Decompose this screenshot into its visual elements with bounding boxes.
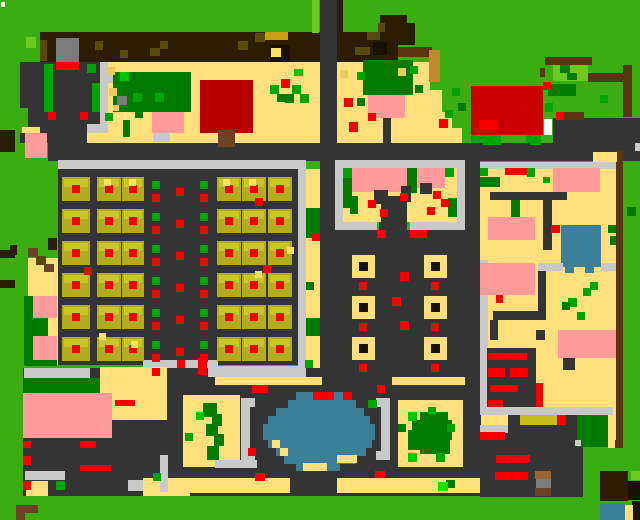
map-dot: [115, 400, 135, 406]
hedge-strip-2: [306, 318, 320, 336]
lamp-drip: [431, 323, 439, 331]
map-dot: [377, 230, 386, 238]
map-dot: [277, 94, 285, 102]
map-dot: [303, 463, 327, 471]
garden1-tree-arm-3: [420, 183, 432, 194]
map-dot: [627, 207, 636, 216]
lamp-core: [359, 344, 368, 353]
pink-hut-plaza: [25, 133, 47, 158]
corridor-dot: [200, 341, 208, 349]
lamp-core: [431, 262, 440, 271]
market-stall-dot: [72, 217, 80, 225]
market-stall-dot: [72, 345, 80, 353]
village-olive-bar: [520, 415, 557, 425]
brown-block-west: [0, 130, 15, 152]
market2-red-1: [488, 353, 527, 360]
map-dot: [551, 225, 560, 233]
market-stall-dot: [225, 185, 233, 193]
map-dot: [337, 455, 357, 463]
map-dot: [107, 67, 115, 75]
market-stall-dot: [105, 217, 113, 225]
market-stall-dot: [250, 281, 258, 289]
village-path-3: [490, 320, 498, 340]
fence-bar-1: [545, 57, 592, 65]
map-dot: [44, 64, 53, 73]
fence-dash: [564, 112, 584, 120]
garden1-wall-right: [457, 160, 465, 230]
map-dot: [400, 272, 409, 281]
map-dot: [415, 85, 423, 93]
village-dot-g3: [480, 168, 488, 176]
map-dot: [271, 48, 281, 57]
map-dot: [377, 385, 385, 393]
fence-vertical-east: [616, 150, 623, 447]
market-stall-dot: [276, 313, 284, 321]
sand-south-3: [170, 478, 290, 493]
market-stall-dot: [250, 345, 258, 353]
hedge-bar-se: [588, 440, 606, 446]
map-dot: [23, 441, 31, 448]
map-dot: [305, 360, 313, 368]
map-dot: [95, 41, 103, 50]
sand-strip-east: [306, 169, 320, 375]
clay-block: [429, 50, 440, 82]
walk-gray-b3: [160, 455, 168, 492]
map-dot: [357, 98, 365, 106]
map-dot: [428, 407, 436, 415]
corridor-dot: [152, 309, 160, 317]
lamp-core: [359, 262, 368, 271]
stall-chip: [131, 341, 138, 348]
pink-hut-left-1: [33, 296, 57, 320]
map-dot: [44, 73, 53, 112]
top-strip: [40, 32, 398, 62]
map-dot: [300, 94, 309, 103]
market-stall-dot: [225, 249, 233, 257]
pond-wall-nub-1: [241, 398, 255, 407]
map-dot: [496, 295, 503, 303]
map-dot: [562, 302, 570, 310]
brown-house-pool: [600, 503, 625, 520]
strip-fence-bar: [398, 47, 432, 57]
village-path-4: [536, 330, 545, 340]
hedge-left-bottom: [25, 360, 57, 366]
market-stall-dot: [129, 249, 137, 257]
map-dot: [0, 280, 15, 288]
market-stall-dot: [129, 217, 137, 225]
pixel-village-map[interactable]: [0, 0, 640, 520]
pond-wall-nub-4: [376, 451, 390, 460]
corridor-dot: [200, 290, 208, 298]
corridor-dot: [152, 290, 160, 298]
stall-chip: [249, 179, 256, 186]
lamp-core: [431, 303, 440, 312]
map-dot: [368, 113, 376, 121]
map-dot: [398, 424, 406, 432]
map-dot: [608, 225, 616, 233]
pond-wall-nub-3: [376, 398, 390, 407]
map-dot: [445, 110, 453, 118]
map-dot: [436, 453, 445, 462]
corridor-dot: [200, 213, 208, 221]
sand-bar-2: [392, 377, 465, 385]
walk-gray-pond-s: [215, 460, 257, 468]
brown-house-sand: [625, 505, 633, 520]
map-dot: [150, 48, 160, 56]
map-dot: [23, 481, 31, 490]
walk-dot-ne: [635, 143, 640, 151]
village-path-1: [538, 271, 546, 313]
map-dot: [263, 265, 271, 273]
pond-row-6: [268, 440, 372, 448]
map-dot: [375, 471, 385, 478]
map-dot: [312, 233, 320, 241]
map-dot: [255, 473, 265, 481]
lamp-core: [431, 344, 440, 353]
map-dot: [543, 82, 551, 90]
village-red-5: [495, 472, 528, 480]
map-dot: [92, 83, 100, 112]
map-dot: [590, 282, 598, 290]
garden1-hedge-right: [448, 198, 457, 217]
map-dot: [285, 94, 294, 103]
map-dot: [80, 441, 96, 448]
map-dot: [84, 267, 92, 275]
map-dot: [556, 112, 564, 120]
corridor-dot: [152, 181, 160, 189]
stall-chip: [223, 179, 230, 186]
map-dot: [133, 93, 142, 102]
sand-bar-1: [215, 377, 322, 385]
walk-gray-b2: [128, 480, 143, 491]
map-dot: [452, 88, 460, 96]
map-dot: [87, 64, 96, 73]
map-dot: [400, 193, 408, 201]
map-dot: [48, 238, 57, 250]
village-pink-2: [488, 217, 535, 240]
road-vertical-north: [320, 0, 337, 143]
map-dot: [177, 360, 185, 368]
market-border-east: [298, 169, 306, 377]
corridor-dot: [152, 213, 160, 221]
path-gray-corner: [87, 124, 108, 133]
village-red-post: [536, 383, 543, 407]
spanel-curve-5: [207, 446, 219, 460]
market-stall-dot: [225, 281, 233, 289]
map-dot: [357, 72, 365, 80]
village-red-4: [496, 455, 530, 463]
market-stall-dot: [276, 217, 284, 225]
market-stall-dot: [105, 345, 113, 353]
brown-house-dark-1: [628, 481, 640, 500]
map-dot: [238, 41, 248, 50]
map-dot: [398, 68, 406, 76]
sand-south-5: [450, 440, 463, 463]
pond-row-3: [276, 408, 364, 416]
garden1-wall-bottom-l: [335, 222, 377, 230]
map-dot: [196, 412, 204, 420]
stack-brown-2: [535, 488, 551, 496]
corridor-dot: [152, 194, 160, 202]
map-dot: [155, 93, 164, 102]
map-dot: [56, 481, 65, 490]
map-dot: [410, 66, 418, 74]
corridor-dot: [200, 309, 208, 317]
map-dot: [408, 412, 417, 421]
lamp-core: [359, 303, 368, 312]
garden1-hedge-left-top: [343, 168, 352, 178]
brown-mark-sw-1: [16, 505, 38, 513]
red-door-2: [479, 120, 497, 130]
market-stall-dot: [72, 185, 80, 193]
map-dot: [152, 368, 160, 376]
map-dot: [400, 321, 409, 330]
tpanel-tree-3: [420, 440, 452, 454]
map-dot: [355, 47, 370, 55]
village-sand-1: [481, 415, 508, 425]
corridor-dot: [152, 354, 160, 362]
map-dot: [367, 32, 380, 40]
garden1-hedge-left-2: [350, 196, 358, 214]
village-hedge-1: [480, 177, 500, 187]
corridor-dot: [152, 245, 160, 253]
village-path-2: [493, 311, 546, 320]
sand-south-4: [337, 478, 480, 493]
stall-chip: [104, 179, 111, 186]
map-dot: [255, 198, 263, 206]
market2-red-2: [488, 368, 505, 377]
mansion-pink: [23, 393, 112, 438]
meadow-clump: [548, 84, 576, 96]
map-dot: [0, 250, 15, 258]
stack-gray: [536, 479, 551, 488]
village-red-2: [558, 415, 566, 425]
map-dot: [313, 392, 334, 400]
lamp-drip: [359, 282, 367, 290]
pond-row-5: [263, 424, 375, 440]
map-dot: [113, 105, 119, 111]
map-dot: [433, 191, 441, 199]
fence-vertical-north: [623, 65, 632, 117]
map-dot: [567, 73, 577, 80]
corridor-dot: [176, 284, 184, 292]
map-dot: [80, 465, 111, 471]
map-dot: [160, 41, 168, 49]
sand-under-path: [87, 133, 108, 143]
market-stall-dot: [250, 217, 258, 225]
corridor-dot: [200, 245, 208, 253]
garden1-wall-left: [335, 160, 343, 230]
stack-brown-1: [535, 471, 551, 479]
map-dot: [252, 385, 268, 393]
map-dot: [290, 40, 315, 62]
top-tree-branch: [407, 23, 415, 45]
map-dot: [380, 209, 388, 217]
village-wall-bottom: [480, 407, 613, 415]
map-dot: [135, 110, 143, 118]
door-brown: [218, 130, 235, 147]
brown-house-dark-2: [632, 501, 640, 520]
map-dot: [368, 200, 376, 208]
map-dot: [280, 448, 288, 456]
map-dot: [349, 122, 358, 132]
market-stall-dot: [250, 313, 258, 321]
map-dot: [1, 2, 5, 7]
map-dot: [610, 236, 616, 245]
corridor-dot: [176, 348, 184, 356]
map-dot: [281, 79, 290, 88]
plaza-red-mat: [56, 62, 79, 70]
market2-red-4: [490, 385, 518, 392]
map-dot: [631, 471, 640, 480]
village-path-5: [563, 358, 575, 370]
map-dot: [120, 72, 129, 81]
map-dot: [120, 50, 128, 58]
market-stall-dot: [250, 185, 258, 193]
map-dot: [340, 70, 348, 78]
garden1-wall-top: [335, 160, 465, 168]
corridor-dot: [200, 277, 208, 285]
tree-grove-2: [363, 60, 413, 95]
village-hedge-2: [511, 200, 520, 217]
pond-row-2: [288, 400, 356, 408]
corridor-dot: [152, 341, 160, 349]
village-pool-foot-2: [585, 267, 594, 273]
map-dot: [438, 482, 448, 491]
map-dot: [373, 42, 387, 55]
market-stall-dot: [72, 281, 80, 289]
village-path-t1: [490, 192, 567, 200]
corridor-dot: [152, 226, 160, 234]
map-dot: [109, 88, 117, 96]
sand-notch-ne: [593, 152, 617, 162]
map-dot: [408, 453, 417, 462]
market-stall-dot: [105, 281, 113, 289]
garden1-pink-1: [352, 168, 407, 192]
map-dot: [600, 95, 608, 103]
strip-gold-block: [265, 32, 288, 40]
hedge-band-sw: [24, 378, 100, 393]
corridor-dot: [200, 322, 208, 330]
path-under-pink: [153, 133, 170, 142]
stall-chip: [129, 179, 136, 186]
market-stall-dot: [276, 345, 284, 353]
corridor-dot: [152, 322, 160, 330]
map-dot: [368, 400, 377, 408]
corridor-dot: [152, 277, 160, 285]
map-dot: [447, 424, 455, 432]
garden1-hedge-right-top: [445, 168, 454, 177]
market-stall-dot: [105, 313, 113, 321]
map-dot: [343, 392, 352, 400]
corridor-dot: [176, 316, 184, 324]
white-marker: [544, 119, 552, 135]
map-dot: [153, 473, 161, 481]
map-dot: [80, 112, 88, 120]
pink-hut-left-2: [33, 336, 57, 360]
village-pool: [561, 225, 601, 267]
walk-dot-se: [575, 440, 581, 446]
sand-dot-se: [608, 440, 615, 448]
market-stall-dot: [225, 313, 233, 321]
stall-chip: [255, 271, 262, 278]
road-main-horizontal: [48, 143, 553, 161]
market-stall-dot: [276, 185, 284, 193]
pink-house-1: [152, 112, 184, 133]
village-pink-4: [558, 330, 617, 358]
corridor-dot: [176, 220, 184, 228]
market-stall-dot: [72, 313, 80, 321]
corridor-dot: [200, 258, 208, 266]
market-stall-dot: [105, 249, 113, 257]
tpanel-tree-4: [408, 430, 420, 450]
market-stall-dot: [129, 313, 137, 321]
corridor-dot: [200, 194, 208, 202]
map-dot: [48, 112, 56, 120]
map-dot: [410, 230, 427, 238]
pond-row-4: [268, 416, 370, 424]
brown-mark-sw-2: [16, 513, 25, 520]
map-dot: [458, 103, 466, 111]
lamp-drip: [431, 282, 439, 290]
map-dot: [105, 113, 113, 121]
map-dot: [530, 140, 541, 145]
village-dot-g1: [527, 168, 535, 177]
corridor-dot: [200, 181, 208, 189]
market2-red-3: [510, 368, 528, 377]
market2-red-5: [488, 400, 503, 407]
map-dot: [185, 433, 193, 441]
market-stall-dot: [225, 217, 233, 225]
market-stall-dot: [276, 249, 284, 257]
corridor-dot: [176, 188, 184, 196]
village-pink-1: [553, 168, 600, 192]
lamp-drip: [359, 323, 367, 331]
walk-gray-b1: [25, 471, 65, 480]
market-stall-dot: [129, 281, 137, 289]
map-dot: [255, 33, 265, 42]
market-stall-dot: [72, 249, 80, 257]
map-dot: [26, 37, 36, 48]
walk-gray-s2: [208, 366, 306, 377]
road-edge-brown: [337, 0, 343, 33]
walk-gray-top: [58, 160, 306, 169]
village-pink-3: [480, 263, 535, 295]
map-dot: [198, 358, 207, 375]
map-dot: [294, 69, 303, 76]
fence-bar-2: [588, 73, 623, 82]
map-dot: [378, 23, 385, 32]
map-dot: [545, 103, 553, 112]
map-dot: [483, 140, 501, 145]
fence-stub: [540, 68, 545, 77]
stall-chip: [287, 247, 294, 254]
map-dot: [40, 40, 47, 61]
map-dot: [292, 85, 301, 94]
market-stall-dot: [250, 249, 258, 257]
hedge-dash: [123, 120, 130, 137]
map-dot: [560, 65, 570, 73]
map-dot: [44, 264, 54, 272]
village-dot-g2: [543, 177, 550, 183]
market-stall-dot: [276, 281, 284, 289]
red-building-1: [200, 80, 253, 133]
lamp-drip: [359, 364, 367, 372]
map-dot: [272, 440, 280, 448]
stall-chip: [99, 333, 106, 340]
market-stall-dot: [225, 345, 233, 353]
sand-wedge-3: [452, 128, 462, 143]
